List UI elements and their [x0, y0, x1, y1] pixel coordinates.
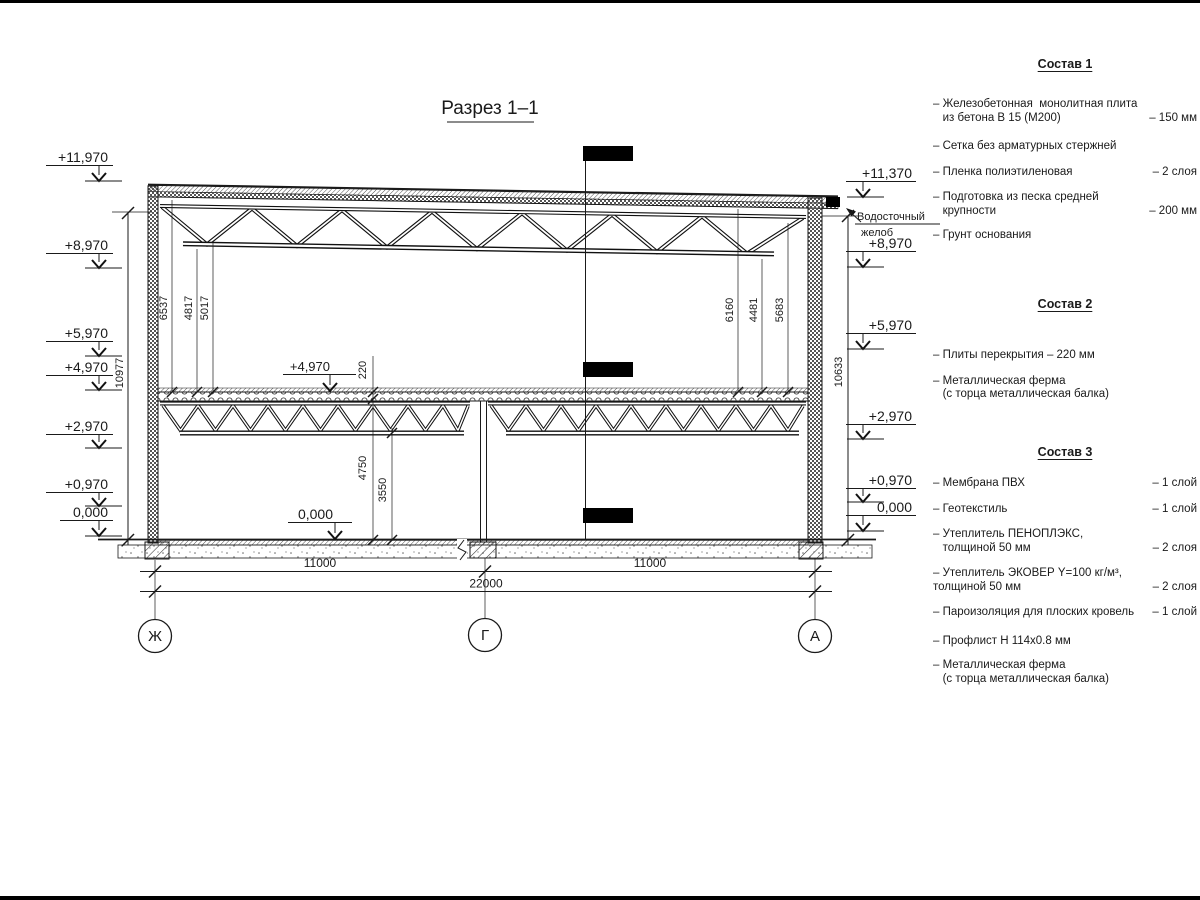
dim-label: 22000: [469, 577, 503, 591]
marker-box-bottom: [583, 508, 633, 523]
item-text: – Профлист Н 114х0.8 мм: [933, 635, 1071, 649]
composition-1: Состав 1 – Железобетонная монолитная пли…: [933, 57, 1197, 243]
item-text: – Утеплитель ПЕНОПЛЭКС, толщиной 50 мм: [933, 528, 1083, 555]
elevation-marks-left: +11,970 +8,970 +5,970 +4,970 +2,970: [46, 149, 122, 536]
elevation-mark: +2,970: [846, 408, 916, 439]
elevation-label: +2,970: [869, 408, 912, 424]
composition-item: – Пароизоляция для плоских кровель – 1 с…: [933, 606, 1197, 620]
composition-item: – Пленка полиэтиленовая – 2 слоя: [933, 166, 1197, 180]
dim-label: 5683: [774, 298, 786, 322]
composition-item: – Профлист Н 114х0.8 мм: [933, 635, 1197, 649]
dim-label: 10633: [833, 357, 845, 388]
composition-item: – Плиты перекрытия – 220 мм: [933, 349, 1197, 363]
elevation-mark: +8,970: [846, 235, 916, 267]
gutter-label-line2: желоб: [861, 227, 893, 239]
composition-item: – Грунт основания: [933, 229, 1197, 243]
item-text: – Пароизоляция для плоских кровель: [933, 606, 1134, 620]
composition-title: Состав 1: [933, 57, 1197, 71]
dim-label: 4481: [748, 298, 760, 322]
wall-right: [808, 198, 822, 543]
composition-item: – Подготовка из песка средней крупности …: [933, 191, 1197, 218]
elevation-label: +11,970: [58, 149, 108, 165]
composition-item: – Утеплитель ПЕНОПЛЭКС, толщиной 50 мм –…: [933, 528, 1197, 555]
elevation-label: +8,970: [65, 237, 108, 253]
elevation-label: +5,970: [869, 317, 912, 333]
elevation-mark-mid-zero: 0,000: [288, 506, 352, 539]
elevation-label: 0,000: [298, 506, 333, 522]
marker-box-top: [583, 146, 633, 161]
composition-item: – Металлическая ферма (с торца металличе…: [933, 375, 1197, 402]
item-qty: – 1 слой: [1146, 503, 1197, 517]
item-text: – Металлическая ферма (с торца металличе…: [933, 375, 1109, 402]
item-qty: – 200 мм: [1143, 205, 1197, 219]
item-qty: – 1 слой: [1146, 606, 1197, 620]
elevation-label: +0,970: [65, 476, 108, 492]
dim-label: 10977: [114, 358, 126, 389]
floor-truss-left: [160, 404, 470, 434]
composition-item: – Сетка без арматурных стержней: [933, 140, 1197, 154]
dim-label: 220: [357, 361, 369, 379]
item-text: – Железобетонная монолитная плита из бет…: [933, 98, 1137, 125]
drawing-sheet: Разрез 1–1: [0, 0, 1200, 900]
dims-interior-right: 6160 4481 5683: [724, 209, 793, 397]
dim-vertical-right: 10633: [822, 210, 858, 546]
footing-right: [799, 542, 823, 559]
dim-label: 4750: [357, 456, 369, 480]
axis-label: А: [810, 628, 820, 645]
mid-floor-slab: [158, 388, 808, 401]
item-text: – Мембрана ПВХ: [933, 477, 1025, 491]
elevation-mark: +4,970: [46, 359, 122, 390]
dim-vertical-left: 10977: [112, 207, 152, 546]
gutter: [826, 197, 840, 207]
elevation-mark: 0,000: [846, 499, 916, 531]
elevation-mark: +0,970: [846, 472, 916, 502]
composition-item: – Геотекстиль – 1 слой: [933, 503, 1197, 517]
dim-label: 6160: [724, 298, 736, 322]
floor-truss-right: [488, 404, 806, 434]
dim-label: 3550: [377, 478, 389, 502]
elevation-label: +4,970: [65, 359, 108, 375]
gutter-label: Водосточный желоб: [846, 208, 940, 239]
elevation-mark: +5,970: [46, 325, 122, 356]
item-qty: – 2 слоя: [1147, 581, 1197, 595]
composition-item: – Утеплитель ЭКОВЕР Y=100 кг/м³, толщино…: [933, 567, 1197, 594]
marker-box-mid: [583, 362, 633, 377]
item-text: – Сетка без арматурных стержней: [933, 140, 1116, 154]
item-qty: – 1 слой: [1146, 477, 1197, 491]
gutter-label-line1: Водосточный: [857, 211, 925, 223]
wall-left: [148, 186, 158, 543]
composition-item: – Металлическая ферма (с торца металличе…: [933, 659, 1197, 686]
elevation-label: +5,970: [65, 325, 108, 341]
composition-title: Состав 2: [933, 297, 1197, 311]
composition-3: Состав 3 – Мембрана ПВХ – 1 слой – Геоте…: [933, 445, 1197, 686]
centre-column: [481, 401, 487, 542]
dim-label: 5017: [199, 296, 211, 320]
composition-title: Состав 3: [933, 445, 1197, 459]
elevation-mark: 0,000: [60, 504, 122, 536]
section-title-text: Разрез 1–1: [441, 98, 539, 119]
item-text: – Подготовка из песка средней крупности: [933, 191, 1099, 218]
elevation-mark: +2,970: [46, 418, 122, 448]
elevation-label: +2,970: [65, 418, 108, 434]
elevation-label: +4,970: [290, 359, 330, 374]
axis-bubbles: Ж Г А: [139, 619, 832, 653]
ground-slab: [98, 539, 876, 560]
item-text: – Утеплитель ЭКОВЕР Y=100 кг/м³, толщино…: [933, 567, 1122, 594]
elevation-mark-mid-floor: +4,970: [283, 359, 356, 391]
elevation-mark: +11,370: [846, 165, 916, 197]
footing-left: [145, 542, 169, 559]
elevation-mark: +0,970: [46, 476, 122, 506]
elevation-label: +11,370: [862, 165, 912, 181]
axis-label: Ж: [148, 628, 162, 645]
dim-label: 6537: [158, 296, 170, 320]
elevation-mark: +8,970: [46, 237, 122, 268]
item-text: – Грунт основания: [933, 229, 1031, 243]
section-title: Разрез 1–1: [441, 98, 539, 122]
dim-label: 11000: [304, 556, 337, 570]
roof-truss: [160, 206, 806, 254]
elevation-mark: +11,970: [46, 149, 122, 181]
item-text: – Металлическая ферма (с торца металличе…: [933, 659, 1109, 686]
elevation-label: +0,970: [869, 472, 912, 488]
item-qty: – 150 мм: [1143, 112, 1197, 126]
item-qty: – 2 слоя: [1147, 542, 1197, 556]
dim-label: 11000: [634, 556, 667, 570]
axis-label: Г: [481, 627, 489, 644]
elevation-label: 0,000: [877, 499, 912, 515]
composition-2: Состав 2 – Плиты перекрытия – 220 мм – М…: [933, 297, 1197, 402]
item-text: – Геотекстиль: [933, 503, 1007, 517]
elevation-label: 0,000: [73, 504, 108, 520]
dim-label: 4817: [183, 296, 195, 320]
composition-item: – Мембрана ПВХ – 1 слой: [933, 477, 1197, 491]
item-qty: – 2 слоя: [1147, 166, 1197, 180]
composition-item: – Железобетонная монолитная плита из бет…: [933, 98, 1197, 125]
roof: [148, 185, 840, 209]
walls: [148, 186, 822, 543]
dims-storey: 220 4750 3550: [357, 356, 397, 545]
elevation-mark: +5,970: [846, 317, 916, 349]
item-text: – Пленка полиэтиленовая: [933, 166, 1072, 180]
footing-column: [470, 542, 496, 558]
dims-bottom: 11000 11000 22000: [140, 556, 832, 619]
item-text: – Плиты перекрытия – 220 мм: [933, 349, 1095, 363]
